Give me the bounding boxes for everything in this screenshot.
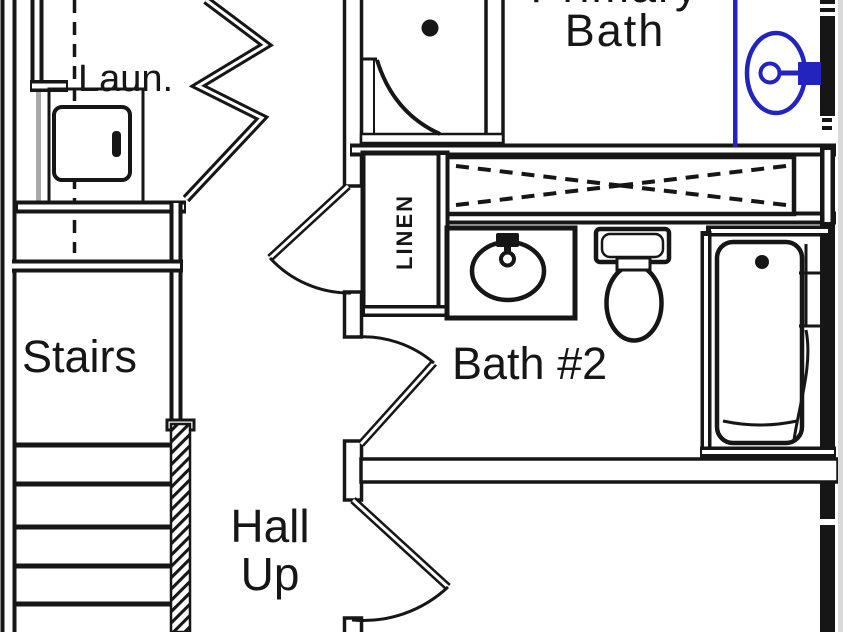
exterior-left-wall	[3, 0, 15, 632]
appliance-handle	[112, 131, 121, 157]
exterior-right-wall	[818, 0, 837, 632]
bath-2-door	[356, 337, 434, 444]
image-edge	[838, 0, 843, 632]
bathtub	[700, 231, 836, 452]
hall-up-label: Up	[205, 551, 335, 597]
shower-stall	[361, 0, 503, 143]
laundry-bifold-door	[186, 0, 266, 199]
stairs-walls	[12, 201, 186, 424]
vanity-sink	[447, 228, 575, 318]
bedroom-wall	[361, 459, 838, 482]
primary-bath-label-line2: Bath	[495, 8, 735, 53]
linen-label: LINEN	[363, 153, 447, 310]
stair-handrail	[167, 420, 194, 632]
shower-seat-curve	[377, 60, 440, 134]
floor-plan: Laun. Stairs Hall Up LINEN Bath #2 Prima…	[0, 0, 843, 632]
shower-head	[422, 20, 439, 37]
faucet	[496, 233, 519, 247]
door-swing-arc	[356, 337, 434, 363]
washer-dryer	[54, 107, 130, 180]
blue-faucet	[798, 62, 821, 85]
linen-closet-door	[270, 186, 351, 293]
tub-drain	[755, 255, 769, 269]
hall-label: Hall	[205, 503, 335, 549]
toilet	[596, 229, 669, 341]
hall-partition-wall	[345, 0, 362, 632]
stairs-label: Stairs	[22, 334, 137, 379]
laundry-label: Laun.	[78, 60, 173, 98]
door-swing-arc	[352, 587, 448, 621]
wire-shelf-closet	[447, 157, 794, 214]
bedroom-door	[352, 500, 448, 621]
round-pedestal-sink-blue	[733, 0, 821, 147]
door-swing-arc	[270, 258, 351, 293]
bath-2-label: Bath #2	[452, 341, 607, 386]
stair-treads	[16, 445, 171, 604]
